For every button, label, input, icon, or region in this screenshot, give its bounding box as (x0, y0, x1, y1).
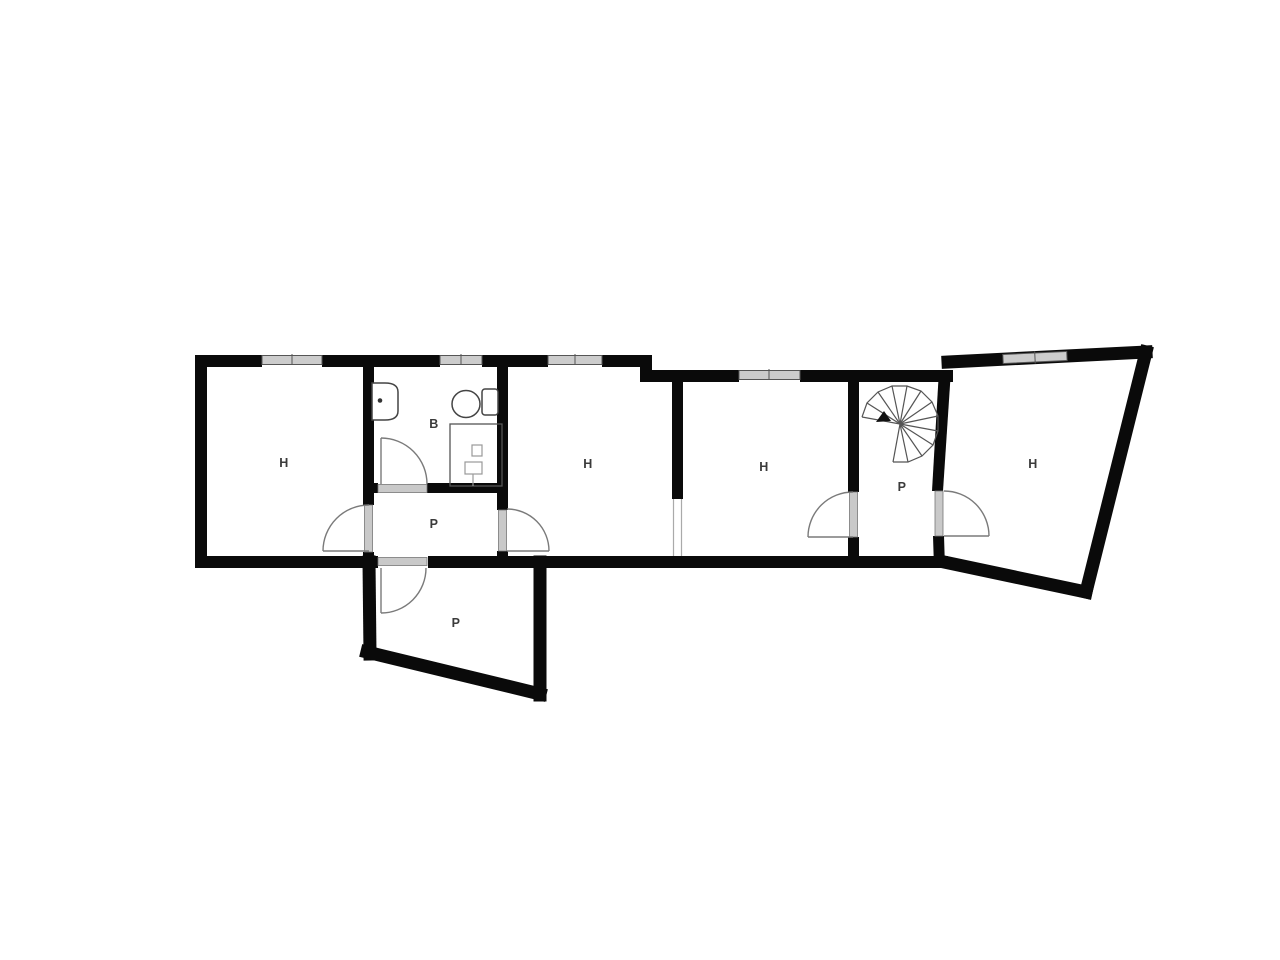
wall-d-stub (848, 537, 859, 568)
room-label-p-stair: P (898, 480, 907, 494)
doors (323, 438, 989, 613)
bathroom-fixtures (372, 383, 502, 486)
door-swing-icon-stair-to-thirdh (808, 492, 853, 537)
wall-top-2 (322, 355, 440, 367)
room-label-p-bottom: P (452, 616, 461, 630)
wall-c-stub (672, 556, 683, 568)
room-label-h-left: H (279, 456, 289, 470)
wall-bottom-room-left (369, 562, 370, 654)
toilet-icon (452, 389, 498, 418)
opening-hall-bath (378, 485, 427, 493)
wall-c-upper (672, 370, 683, 499)
wall-right-room-bottom (944, 562, 1086, 592)
wall-b-stub (497, 551, 508, 568)
door-swing-icon-hall-to-bottomp (381, 568, 426, 613)
floor-plan-drawing (0, 0, 1280, 960)
window-icon-1 (262, 354, 322, 365)
shower-icon (450, 424, 502, 486)
wall-bath-bottom-2 (427, 483, 508, 493)
opening-thirdh-stair (850, 492, 858, 537)
door-swing-icon-stair-to-righth (944, 491, 989, 536)
room-label-h-third: H (759, 460, 769, 474)
wall-top-1 (195, 355, 262, 367)
opening-stair-righth (935, 491, 943, 536)
sink-icon (372, 383, 398, 420)
walls (195, 352, 1146, 695)
wall-top-3 (482, 355, 548, 367)
window-icon-3 (548, 354, 602, 365)
room-label-p-hall: P (430, 517, 439, 531)
window-icon-4 (739, 369, 800, 380)
wall-a-upper (363, 355, 374, 505)
door-swing-icon-hall-to-bath (381, 438, 427, 484)
door-swing-icon-hall-to-middleh (507, 509, 549, 551)
wall-top-6 (800, 370, 953, 382)
floor-plan-canvas: H B P H H P H P (0, 0, 1280, 960)
opening-hall-middleh (499, 510, 507, 551)
spiral-staircase-icon (862, 386, 938, 462)
wall-bottom-room-bottom (367, 652, 540, 694)
opening-hall-bottomp (378, 558, 427, 566)
room-label-h-right: H (1028, 457, 1038, 471)
window-icon-2 (440, 354, 482, 365)
wall-bottom-1 (195, 556, 378, 568)
door-swing-icon-hall-to-lefth (323, 505, 369, 551)
wall-opening-middleh-thirdh (674, 499, 682, 556)
wall-left-outer (195, 355, 207, 568)
room-label-b-bath: B (429, 417, 439, 431)
wall-d-upper (848, 370, 859, 492)
wall-bath-bottom-1 (363, 483, 378, 493)
wall-top-5 (640, 370, 739, 382)
room-label-h-middle: H (583, 457, 593, 471)
wall-right-room-right (1086, 352, 1146, 592)
opening-hall-lefth (365, 505, 373, 552)
